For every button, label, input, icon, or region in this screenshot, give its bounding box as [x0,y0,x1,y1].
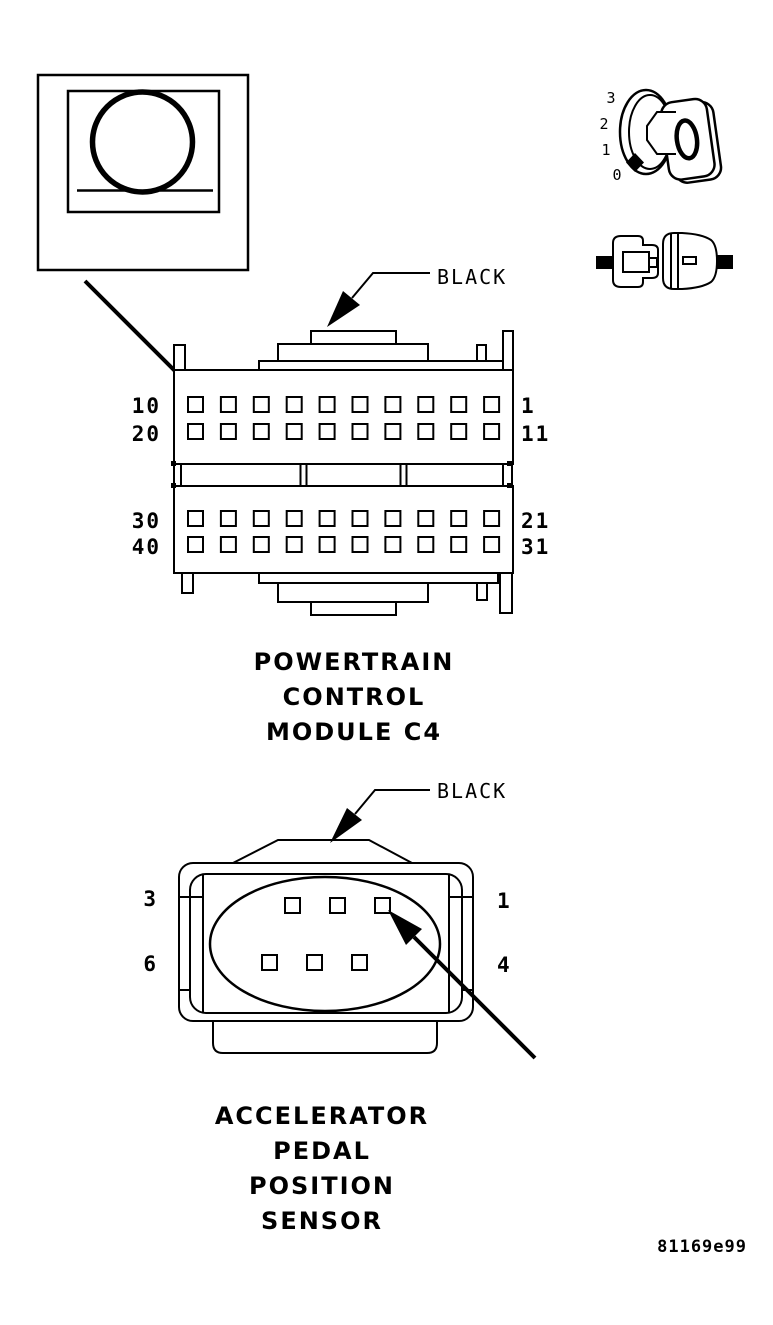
pin-label-31: 31 [521,535,550,559]
pin [320,397,335,412]
app-wire-color-callout: BLACK [330,779,507,843]
pin [418,397,433,412]
switch-position-labels: 3 2 1 0 [599,89,621,184]
pin-label-11: 11 [521,422,550,446]
switch-position-3: 3 [606,89,615,107]
pcm-caption: POWERTRAIN CONTROL MODULE C4 [254,648,455,746]
pin [484,511,499,526]
app-caption-line-4: SENSOR [261,1207,383,1235]
pin [385,511,400,526]
app-top-tab [233,840,412,863]
pin-label-10: 10 [132,394,161,418]
app-sensor-connector: 3 6 1 4 BLACK ACCELERATOR PEDAL POSITION… [143,779,535,1235]
app-caption-line-3: POSITION [249,1172,395,1200]
pin [188,424,203,439]
pin-label-6: 6 [143,952,158,976]
pcm-caption-line-2: CONTROL [283,683,426,711]
pin [287,511,302,526]
pin [418,424,433,439]
pin-label-1: 1 [521,394,536,418]
app-caption: ACCELERATOR PEDAL POSITION SENSOR [215,1102,429,1235]
pin [385,537,400,552]
pin [451,397,466,412]
pin [385,424,400,439]
pin [418,511,433,526]
app-leader-line [355,790,430,814]
pin [330,898,345,913]
plug-half [613,236,658,287]
app-caption-line-2: PEDAL [273,1137,371,1165]
pin-label-1: 1 [497,889,512,913]
arrowhead-icon [327,291,360,327]
pcm-caption-line-3: MODULE C4 [266,718,442,746]
pin [188,511,203,526]
pin [353,537,368,552]
pcm-connector: 10 20 1 11 30 40 21 31 BLACK POWERTRAIN … [132,265,551,746]
pin [287,537,302,552]
pin [221,511,236,526]
pin [451,511,466,526]
disconnect-connector-icon [596,233,733,289]
pcm-bottom-tab [311,602,396,615]
pin [285,898,300,913]
switch-position-0: 0 [612,166,621,184]
pcm-wire-color-callout: BLACK [327,265,507,327]
pin [320,424,335,439]
pin [385,397,400,412]
pin [307,955,322,970]
pin [221,537,236,552]
pin [451,424,466,439]
pin [353,511,368,526]
pin [484,537,499,552]
app-caption-line-1: ACCELERATOR [215,1102,429,1130]
pcm-middle-band [174,464,512,486]
pin-label-21: 21 [521,509,550,533]
pin [254,397,269,412]
pin [353,397,368,412]
pcm-top-tab [311,331,396,344]
app-wire-color-label: BLACK [437,779,507,803]
pin [287,397,302,412]
ohmmeter-symbol [38,75,248,270]
pin [451,537,466,552]
pin [352,955,367,970]
wire-stub-right [717,255,733,269]
pin [484,397,499,412]
position-marker-diamond [626,153,644,172]
pin-label-4: 4 [497,953,512,977]
pin [484,424,499,439]
pin [254,424,269,439]
pin [262,955,277,970]
pin [254,537,269,552]
pcm-body-top [174,370,513,464]
wire-stub-left [596,256,614,269]
figure-code: 81169e99 [657,1237,747,1257]
pin [221,424,236,439]
pcm-caption-line-1: POWERTRAIN [254,648,455,676]
switch-position-1: 1 [601,141,610,159]
ignition-switch-icon: 3 2 1 0 [599,89,722,185]
pin-label-3: 3 [143,887,158,911]
pcm-wire-color-label: BLACK [437,265,507,289]
pin-label-40: 40 [132,535,161,559]
pin-label-20: 20 [132,422,161,446]
pin [320,537,335,552]
pin [287,424,302,439]
pin [375,898,390,913]
pin [418,537,433,552]
pin-label-30: 30 [132,509,161,533]
wiring-diagram: 3 2 1 0 [0,0,773,1325]
pin [188,397,203,412]
pcm-leader-line [352,273,430,298]
pin [221,397,236,412]
arrowhead-icon [330,808,362,843]
app-bottom-tab [213,1021,437,1053]
pin [254,511,269,526]
switch-position-2: 2 [599,115,608,133]
pin [320,511,335,526]
pcm-body-bottom [174,486,513,573]
pin [188,537,203,552]
pin [353,424,368,439]
